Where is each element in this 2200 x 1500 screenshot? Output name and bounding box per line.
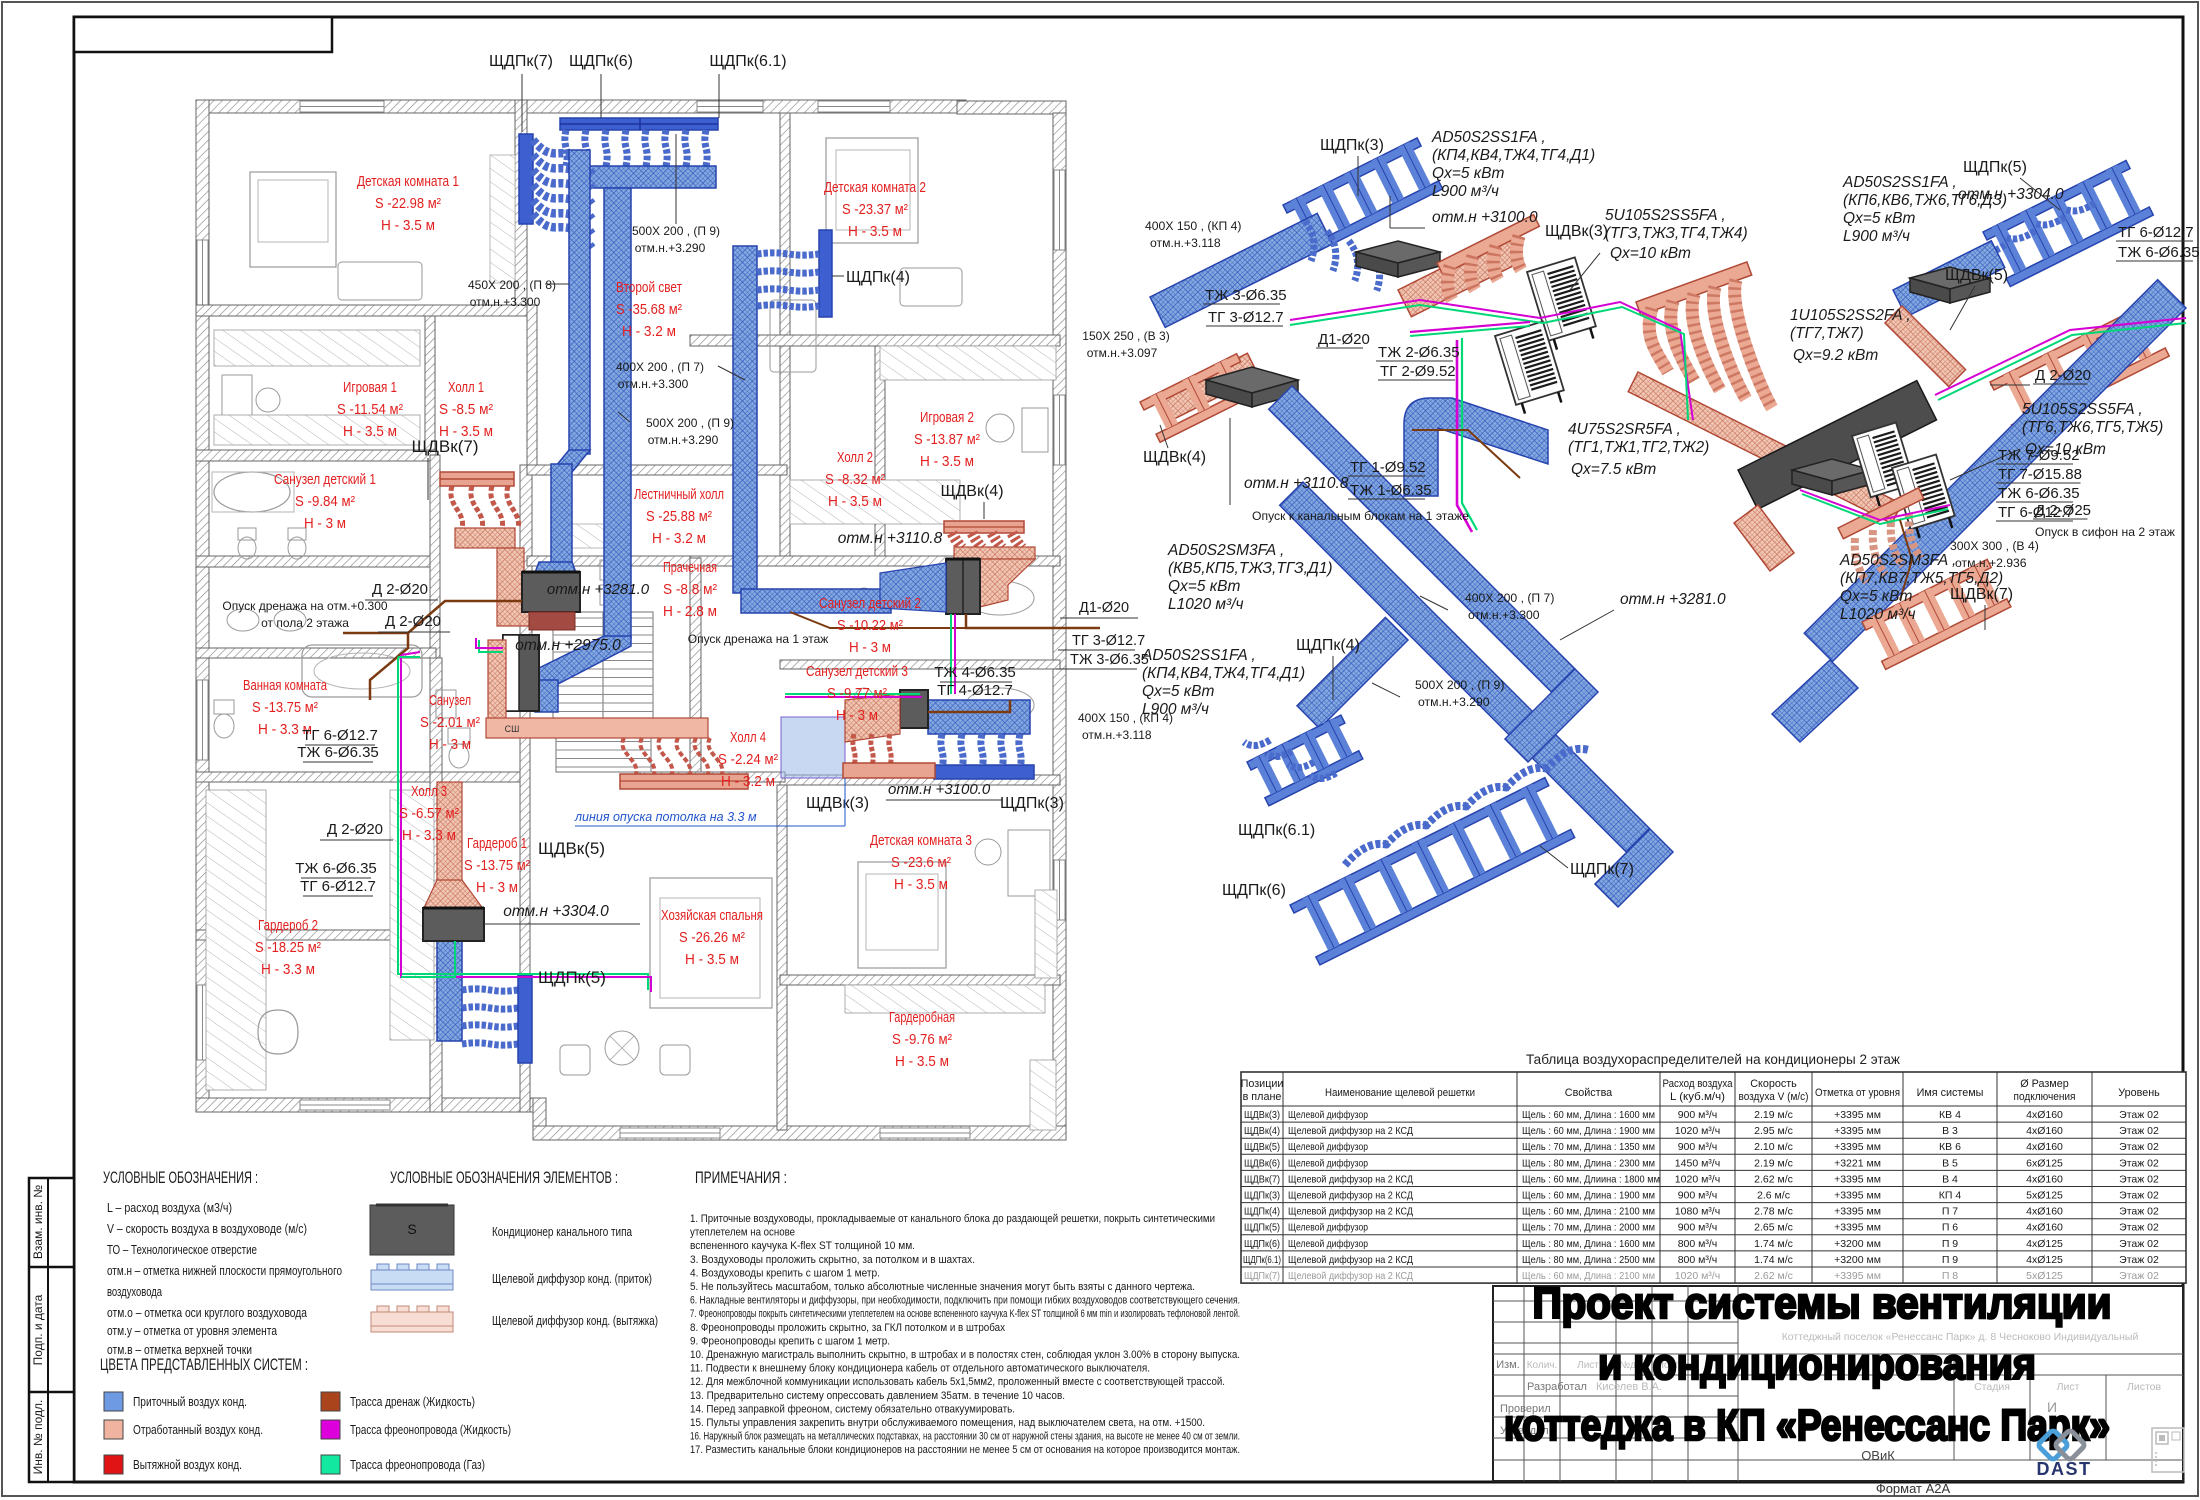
svg-text:отм.у – отметка от уровня элем: отм.у – отметка от уровня элемента — [107, 1324, 277, 1338]
svg-text:S -8.5 м²: S -8.5 м² — [439, 402, 493, 418]
svg-text:ЩДПк(4): ЩДПк(4) — [846, 269, 910, 286]
svg-text:Щель : 60 мм, Длина : 1900 мм: Щель : 60 мм, Длина : 1900 мм — [1522, 1190, 1655, 1202]
svg-text:В 4: В 4 — [1942, 1173, 1958, 1185]
svg-text:800 м³/ч: 800 м³/ч — [1678, 1254, 1718, 1266]
svg-text:Д1-Ø20: Д1-Ø20 — [1079, 600, 1129, 616]
svg-text:L900 м³/ч: L900 м³/ч — [1432, 183, 1499, 200]
svg-text:(ТГ6,ТЖ6,ТГ5,ТЖ5): (ТГ6,ТЖ6,ТГ5,ТЖ5) — [2022, 419, 2163, 436]
svg-text:4хØ125: 4хØ125 — [2026, 1238, 2063, 1250]
svg-text:В 5: В 5 — [1942, 1157, 1958, 1169]
svg-text:10. Дренажную магистраль выпол: 10. Дренажную магистраль выполнить скрыт… — [690, 1349, 1240, 1361]
svg-text:(КВ5,КП5,ТЖЗ,ТГЗ,Д1): (КВ5,КП5,ТЖЗ,ТГЗ,Д1) — [1168, 560, 1333, 577]
svg-text:4хØ160: 4хØ160 — [2026, 1173, 2063, 1185]
svg-text:Таблица воздухораспределителей: Таблица воздухораспределителей на кондиц… — [1526, 1052, 1900, 1067]
svg-text:Этаж 02: Этаж 02 — [2119, 1222, 2159, 1234]
svg-text:L1020 м³/ч: L1020 м³/ч — [1840, 606, 1916, 623]
svg-text:Н - 3.2 м: Н - 3.2 м — [652, 531, 706, 547]
svg-text:+3395 мм: +3395 мм — [1834, 1190, 1881, 1202]
svg-text:Холл 3: Холл 3 — [411, 784, 447, 800]
svg-text:+3395 мм: +3395 мм — [1834, 1206, 1881, 1218]
svg-text:ТЖ 1-Ø6.35: ТЖ 1-Ø6.35 — [1350, 482, 1432, 499]
svg-text:ЩДПк(3): ЩДПк(3) — [1000, 795, 1064, 812]
svg-text:DAST: DAST — [2037, 1459, 2092, 1479]
svg-text:отм.н.+3.300: отм.н.+3.300 — [470, 295, 541, 309]
svg-text:ОВиК: ОВиК — [1861, 1448, 1895, 1463]
svg-text:П 7: П 7 — [1942, 1206, 1958, 1218]
svg-text:ТЖ 2-Ø6.35: ТЖ 2-Ø6.35 — [1378, 344, 1460, 361]
svg-text:ЩДПк(4): ЩДПк(4) — [1244, 1206, 1280, 1218]
svg-text:Игровая 2: Игровая 2 — [920, 410, 974, 426]
svg-text:ЩДПк(6): ЩДПк(6) — [569, 53, 633, 70]
svg-text:ТГ 3-Ø12.7: ТГ 3-Ø12.7 — [1072, 633, 1145, 649]
svg-text:Qx=5 кВт: Qx=5 кВт — [1168, 578, 1240, 595]
svg-text:Н - 2.8 м: Н - 2.8 м — [663, 604, 717, 620]
svg-text:900 м³/ч: 900 м³/ч — [1678, 1109, 1718, 1121]
svg-text:4. Воздуховоды крепить с шагом: 4. Воздуховоды крепить с шагом 1 метр. — [690, 1267, 880, 1279]
svg-text:отм.н +3304.0: отм.н +3304.0 — [503, 903, 609, 920]
svg-text:Лист: Лист — [2057, 1381, 2080, 1393]
svg-text:S -9.76 м²: S -9.76 м² — [892, 1032, 952, 1048]
svg-text:Детская комната 2: Детская комната 2 — [824, 180, 926, 196]
svg-text:Разработал: Разработал — [1527, 1381, 1587, 1393]
svg-text:ЩДВк(3): ЩДВк(3) — [1244, 1109, 1280, 1121]
svg-text:УСЛОВНЫЕ ОБОЗНАЧЕНИЯ :: УСЛОВНЫЕ ОБОЗНАЧЕНИЯ : — [103, 1169, 258, 1187]
svg-text:S -13.87 м²: S -13.87 м² — [914, 432, 980, 448]
svg-text:ЩДВк(5): ЩДВк(5) — [1244, 1141, 1280, 1153]
svg-text:ЦВЕТА ПРЕДСТАВЛЕННЫХ СИСТЕМ :: ЦВЕТА ПРЕДСТАВЛЕННЫХ СИСТЕМ : — [100, 1356, 308, 1374]
svg-text:(ТГЗ,ТЖЗ,ТГ4,ТЖ4): (ТГЗ,ТЖЗ,ТГ4,ТЖ4) — [1605, 225, 1748, 242]
svg-text:900 м³/ч: 900 м³/ч — [1678, 1141, 1718, 1153]
svg-text:4хØ160: 4хØ160 — [2026, 1109, 2063, 1121]
svg-text:ЩДВк(3): ЩДВк(3) — [806, 795, 869, 812]
svg-text:14. Перед заправкой фреоном, с: 14. Перед заправкой фреоном, систему обя… — [690, 1403, 1015, 1415]
svg-text:Н - 3 м: Н - 3 м — [429, 737, 471, 753]
svg-text:500Х 200 , (П 9): 500Х 200 , (П 9) — [632, 224, 720, 238]
svg-text:Этаж 02: Этаж 02 — [2119, 1238, 2159, 1250]
svg-text:ЩДПк(4): ЩДПк(4) — [1296, 637, 1360, 654]
svg-text:4хØ160: 4хØ160 — [2026, 1222, 2063, 1234]
svg-text:12. Для межблочной коммуникаци: 12. Для межблочной коммуникации использо… — [690, 1376, 1225, 1388]
svg-text:ЩДПк(5): ЩДПк(5) — [1963, 159, 2027, 176]
svg-text:ЩДПк(6.1): ЩДПк(6.1) — [1243, 1254, 1281, 1266]
svg-text:Щелевой диффузор на 2 КСД: Щелевой диффузор на 2 КСД — [1288, 1173, 1413, 1185]
svg-text:Вытяжной воздух конд.: Вытяжной воздух конд. — [133, 1458, 242, 1472]
svg-text:4хØ160: 4хØ160 — [2026, 1206, 2063, 1218]
svg-text:Н - 3.3 м: Н - 3.3 м — [402, 828, 456, 844]
svg-text:2.19 м/с: 2.19 м/с — [1754, 1157, 1793, 1169]
svg-text:коттеджа в КП «Ренессанс Парк»: коттеджа в КП «Ренессанс Парк» — [1504, 1401, 2110, 1450]
svg-text:ЩДПк(5): ЩДПк(5) — [1244, 1222, 1280, 1234]
svg-text:Щелевой диффузор на 2 КСД: Щелевой диффузор на 2 КСД — [1288, 1206, 1413, 1218]
svg-text:(КП4,КВ4,ТЖ4,ТГ4,Д1): (КП4,КВ4,ТЖ4,ТГ4,Д1) — [1432, 147, 1595, 164]
svg-text:1450 м³/ч: 1450 м³/ч — [1675, 1157, 1720, 1169]
svg-text:Позиции: Позиции — [1241, 1078, 1284, 1090]
svg-text:СШ: СШ — [505, 724, 520, 734]
svg-text:Н - 3.2 м: Н - 3.2 м — [721, 774, 775, 790]
svg-text:+3395 мм: +3395 мм — [1834, 1141, 1881, 1153]
svg-text:отм.н +3110.8: отм.н +3110.8 — [838, 530, 943, 547]
svg-text:Щелевой диффузор: Щелевой диффузор — [1288, 1157, 1368, 1169]
svg-text:4хØ160: 4хØ160 — [2026, 1125, 2063, 1137]
svg-text:Свойства: Свойства — [1565, 1087, 1612, 1099]
svg-text:S: S — [407, 1221, 416, 1237]
svg-text:S -2.01 м²: S -2.01 м² — [420, 715, 480, 731]
svg-text:Н - 3 м: Н - 3 м — [304, 516, 346, 532]
svg-text:Н - 3.5 м: Н - 3.5 м — [828, 494, 882, 510]
svg-text:ЩДПк(3): ЩДПк(3) — [1244, 1190, 1280, 1202]
svg-text:ТЖ 4-Ø6.35: ТЖ 4-Ø6.35 — [934, 664, 1016, 681]
svg-text:Гардеробная: Гардеробная — [889, 1010, 955, 1026]
svg-text:500Х 200 , (П 9): 500Х 200 , (П 9) — [646, 416, 734, 430]
svg-text:S -23.37 м²: S -23.37 м² — [842, 202, 908, 218]
svg-text:Кондиционер канального типа: Кондиционер канального типа — [492, 1225, 632, 1239]
svg-text:2.78 м/с: 2.78 м/с — [1754, 1206, 1793, 1218]
svg-text:Щелевой диффузор конд. (приток: Щелевой диффузор конд. (приток) — [492, 1272, 652, 1286]
svg-text:Qx=5 кВт: Qx=5 кВт — [1843, 210, 1915, 227]
svg-text:ТГ 2-Ø9.52: ТГ 2-Ø9.52 — [1380, 363, 1456, 380]
svg-text:ЩДВк(6): ЩДВк(6) — [1244, 1157, 1280, 1169]
svg-text:Н - 3.5 м: Н - 3.5 м — [685, 952, 739, 968]
svg-text:6хØ125: 6хØ125 — [2026, 1157, 2063, 1169]
svg-text:Формат А2А: Формат А2А — [1876, 1481, 1951, 1496]
svg-text:КП 4: КП 4 — [1939, 1190, 1962, 1202]
svg-text:S -18.25 м²: S -18.25 м² — [255, 940, 321, 956]
svg-text:ЩДВк(4): ЩДВк(4) — [1244, 1125, 1280, 1137]
svg-text:Детская комната 1: Детская комната 1 — [357, 174, 459, 190]
svg-text:Щель : 60 мм, Длина : 1900 мм: Щель : 60 мм, Длина : 1900 мм — [1522, 1125, 1655, 1137]
svg-text:ЩДПк(7): ЩДПк(7) — [1570, 861, 1634, 878]
svg-text:Опуск в сифон на 2 этаж: Опуск в сифон на 2 этаж — [2035, 525, 2176, 539]
svg-text:S -8.32 м²: S -8.32 м² — [825, 472, 885, 488]
svg-text:Хозяйская спальня: Хозяйская спальня — [661, 908, 763, 924]
svg-text:ЩДВк(7): ЩДВк(7) — [1244, 1173, 1280, 1185]
svg-text:6. Накладные вентиляторы и диф: 6. Накладные вентиляторы и диффузоры, пр… — [690, 1295, 1240, 1307]
svg-text:+3200 мм: +3200 мм — [1834, 1238, 1881, 1250]
svg-text:S -13.75 м²: S -13.75 м² — [464, 858, 530, 874]
svg-text:ТЖ 6-Ø6.35: ТЖ 6-Ø6.35 — [295, 860, 377, 877]
svg-text:5U105S2SS5FA ,: 5U105S2SS5FA , — [1605, 207, 1726, 224]
svg-text:Этаж 02: Этаж 02 — [2119, 1190, 2159, 1202]
svg-text:и кондиционирования: и кондиционирования — [1598, 1340, 2036, 1389]
svg-text:Щелевой диффузор: Щелевой диффузор — [1288, 1238, 1368, 1250]
svg-text:отм.н.+3.300: отм.н.+3.300 — [618, 377, 689, 391]
svg-text:S -26.26 м²: S -26.26 м² — [679, 930, 745, 946]
svg-text:ЩДВк(3): ЩДВк(3) — [1545, 223, 1608, 240]
svg-text:Прачечная: Прачечная — [663, 560, 717, 576]
svg-text:отм.н – отметка нижней плоскос: отм.н – отметка нижней плоскости прямоуг… — [107, 1264, 342, 1278]
svg-text:Инв. № подл.: Инв. № подл. — [31, 1400, 45, 1475]
svg-text:S -6.57 м²: S -6.57 м² — [399, 806, 459, 822]
svg-text:Щель : 70 мм, Длина : 2000 мм: Щель : 70 мм, Длина : 2000 мм — [1522, 1222, 1655, 1234]
svg-text:Щель : 60 мм, Длиина : 1800 мм: Щель : 60 мм, Длиина : 1800 мм — [1522, 1173, 1660, 1185]
svg-text:Холл 2: Холл 2 — [837, 450, 873, 466]
svg-text:в плане: в плане — [1243, 1091, 1282, 1103]
svg-text:вспененного каучука K-flex ST: вспененного каучука K-flex ST толщиной 1… — [690, 1240, 915, 1252]
svg-text:ТЖ 6-Ø6.35: ТЖ 6-Ø6.35 — [1998, 485, 2080, 502]
svg-text:L (куб.м/ч): L (куб.м/ч) — [1670, 1091, 1725, 1103]
svg-text:воздуха V (м/с): воздуха V (м/с) — [1739, 1091, 1809, 1103]
svg-text:Этаж 02: Этаж 02 — [2119, 1270, 2159, 1282]
svg-text:Этаж 02: Этаж 02 — [2119, 1206, 2159, 1218]
svg-text:9. Фреонопроводы крепить с шаг: 9. Фреонопроводы крепить с шагом 1 метр. — [690, 1335, 890, 1347]
svg-text:16. Наружный блок размещать н: 16. Наружный блок размещать на металличе… — [690, 1431, 1240, 1443]
svg-text:13. Предварительно систему опр: 13. Предварительно систему опрессовать д… — [690, 1390, 1065, 1402]
svg-text:+3395 мм: +3395 мм — [1834, 1125, 1881, 1137]
svg-text:ТГ 4-Ø12.7: ТГ 4-Ø12.7 — [937, 682, 1013, 699]
svg-text:Щель : 60 мм, Длина : 1600 мм: Щель : 60 мм, Длина : 1600 мм — [1522, 1109, 1655, 1121]
svg-text:+3395 мм: +3395 мм — [1834, 1222, 1881, 1234]
svg-text:5хØ125: 5хØ125 — [2026, 1190, 2063, 1202]
svg-text:Подп. и дата: Подп. и дата — [31, 1294, 45, 1365]
svg-text:отм.н.+3.290: отм.н.+3.290 — [648, 433, 719, 447]
svg-text:Трасса фреонопровода (Газ): Трасса фреонопровода (Газ) — [350, 1458, 485, 1472]
svg-text:Н - 3.5 м: Н - 3.5 м — [920, 454, 974, 470]
svg-text:ЩДВк(5): ЩДВк(5) — [538, 839, 605, 858]
svg-text:Санузел: Санузел — [429, 693, 471, 709]
svg-text:Щель : 60 мм, Длина : 2100 мм: Щель : 60 мм, Длина : 2100 мм — [1522, 1206, 1655, 1218]
svg-text:1020 м³/ч: 1020 м³/ч — [1675, 1173, 1720, 1185]
svg-text:отм.н +3304.0: отм.н +3304.0 — [1958, 186, 2064, 203]
svg-text:11. Подвести к внешнему блоку: 11. Подвести к внешнему блоку кондиционе… — [690, 1363, 1150, 1375]
svg-text:S -23.6 м²: S -23.6 м² — [891, 855, 951, 871]
svg-text:воздуховода: воздуховода — [107, 1285, 162, 1299]
svg-text:Щелевой диффузор на 2 КСД: Щелевой диффузор на 2 КСД — [1288, 1254, 1413, 1266]
svg-text:8. Фреонопроводы проложить скр: 8. Фреонопроводы проложить скрытно, за Г… — [690, 1322, 1005, 1334]
svg-text:Этаж 02: Этаж 02 — [2119, 1254, 2159, 1266]
svg-text:Щелевой диффузор: Щелевой диффузор — [1288, 1141, 1368, 1153]
svg-text:+3221 мм: +3221 мм — [1834, 1157, 1881, 1169]
svg-text:Этаж 02: Этаж 02 — [2119, 1141, 2159, 1153]
svg-text:2.19 м/с: 2.19 м/с — [1754, 1109, 1793, 1121]
svg-text:7. Фреонопроводы покрыть синте: 7. Фреонопроводы покрыть синтетическими … — [690, 1308, 1240, 1320]
svg-text:Н - 3.2 м: Н - 3.2 м — [622, 324, 676, 340]
svg-text:отм.н.+3.300: отм.н.+3.300 — [1468, 608, 1540, 622]
svg-text:ТЖ 7-Ø9.52: ТЖ 7-Ø9.52 — [1998, 447, 2080, 464]
svg-text:AD50S2SS1FA ,: AD50S2SS1FA , — [1141, 647, 1256, 664]
svg-text:Второй свет: Второй свет — [616, 280, 682, 296]
svg-text:ЩДПк(6): ЩДПк(6) — [1244, 1238, 1280, 1250]
svg-text:AD50S2SS1FA ,: AD50S2SS1FA , — [1842, 174, 1957, 191]
svg-text:утеплетелем на основе: утеплетелем на основе — [690, 1227, 795, 1239]
svg-text:отм.н +3281.0: отм.н +3281.0 — [1620, 591, 1726, 608]
svg-text:ТГ 6-Ø12.7: ТГ 6-Ø12.7 — [300, 878, 376, 895]
svg-text:Изм.: Изм. — [1496, 1359, 1520, 1371]
svg-text:L – расход воздуха (м3/ч): L – расход воздуха (м3/ч) — [107, 1201, 232, 1215]
svg-text:КВ 6: КВ 6 — [1939, 1141, 1961, 1153]
svg-text:Д 2-Ø25: Д 2-Ø25 — [2035, 502, 2091, 519]
svg-text:В 3: В 3 — [1942, 1125, 1958, 1137]
svg-text:Имя системы: Имя системы — [1917, 1087, 1984, 1099]
svg-text:Взам. инв. №: Взам. инв. № — [31, 1185, 45, 1259]
svg-text:2.65 м/с: 2.65 м/с — [1754, 1222, 1793, 1234]
svg-text:Отметка от уровня: Отметка от уровня — [1815, 1087, 1900, 1099]
svg-text:Игровая 1: Игровая 1 — [343, 380, 397, 396]
svg-text:Щелевой диффузор на 2 КСД: Щелевой диффузор на 2 КСД — [1288, 1270, 1413, 1282]
svg-text:Qx=9.2 кВт: Qx=9.2 кВт — [1793, 347, 1878, 364]
svg-text:Холл 1: Холл 1 — [448, 380, 484, 396]
svg-text:Н - 3.5 м: Н - 3.5 м — [895, 1054, 949, 1070]
svg-text:ЩДВк(4): ЩДВк(4) — [1143, 449, 1206, 466]
svg-text:УСЛОВНЫЕ ОБОЗНАЧЕНИЯ ЭЛЕМЕНТОВ: УСЛОВНЫЕ ОБОЗНАЧЕНИЯ ЭЛЕМЕНТОВ : — [390, 1169, 618, 1187]
svg-text:(ТГ7,ТЖ7): (ТГ7,ТЖ7) — [1790, 325, 1864, 342]
svg-text:Д 2-Ø20: Д 2-Ø20 — [327, 821, 383, 838]
svg-text:ТО – Технологическое отверстие: ТО – Технологическое отверстие — [107, 1243, 257, 1257]
svg-text:Гардероб 2: Гардероб 2 — [258, 918, 318, 934]
svg-text:Д 2-Ø20: Д 2-Ø20 — [2035, 367, 2091, 384]
svg-text:отм.н +3281.0: отм.н +3281.0 — [547, 581, 650, 598]
svg-text:Н - 3.5 м: Н - 3.5 м — [894, 877, 948, 893]
svg-text:ЩДПк(5): ЩДПк(5) — [538, 968, 606, 987]
svg-text:Н - 3 м: Н - 3 м — [476, 880, 518, 896]
svg-text:Трасса дренаж (Жидкость): Трасса дренаж (Жидкость) — [350, 1395, 475, 1409]
svg-text:Щель : 80 мм, Длина : 2300 мм: Щель : 80 мм, Длина : 2300 мм — [1522, 1157, 1655, 1169]
svg-text:500Х 200 , (П 9): 500Х 200 , (П 9) — [1415, 678, 1504, 692]
svg-text:S -10.22 м²: S -10.22 м² — [837, 618, 903, 634]
svg-text:Щелевой диффузор на 2 КСД: Щелевой диффузор на 2 КСД — [1288, 1125, 1413, 1137]
svg-text:1. Приточные воздуховоды, прок: 1. Приточные воздуховоды, прокладываемые… — [690, 1213, 1215, 1225]
svg-text:от пола 2 этажа: от пола 2 этажа — [261, 616, 349, 630]
svg-text:Этаж 02: Этаж 02 — [2119, 1173, 2159, 1185]
svg-text:Уровень: Уровень — [2118, 1087, 2160, 1099]
svg-text:ТЖ 3-Ø6.35: ТЖ 3-Ø6.35 — [1205, 287, 1287, 304]
svg-text:Трасса фреонопровода (Жидкость: Трасса фреонопровода (Жидкость) — [350, 1423, 511, 1437]
svg-text:Щелевой диффузор конд. (вытяжк: Щелевой диффузор конд. (вытяжка) — [492, 1314, 658, 1328]
svg-text:ТГ 6-Ø12.7: ТГ 6-Ø12.7 — [2118, 224, 2194, 241]
svg-text:Ø Размер: Ø Размер — [2020, 1078, 2069, 1090]
svg-text:900 м³/ч: 900 м³/ч — [1678, 1190, 1718, 1202]
svg-text:отм.н +2975.0: отм.н +2975.0 — [515, 637, 621, 654]
svg-text:Санузел детский 1: Санузел детский 1 — [274, 472, 376, 488]
svg-text:ПРИМЕЧАНИЯ :: ПРИМЕЧАНИЯ : — [695, 1169, 787, 1187]
svg-text:400Х 200 , (П 7): 400Х 200 , (П 7) — [1465, 591, 1554, 605]
svg-text:S -11.54 м²: S -11.54 м² — [337, 402, 403, 418]
svg-text:Щелевой диффузор на 2 КСД: Щелевой диффузор на 2 КСД — [1288, 1190, 1413, 1202]
svg-text:Н - 3.3 м: Н - 3.3 м — [261, 962, 315, 978]
svg-text:Наименование щелевой решетки: Наименование щелевой решетки — [1325, 1087, 1475, 1099]
svg-text:+3200 мм: +3200 мм — [1834, 1254, 1881, 1266]
svg-text:Н - 3 м: Н - 3 м — [836, 708, 878, 724]
svg-text:5. Не пользуйтесь масштабом, т: 5. Не пользуйтесь масштабом, только абсо… — [690, 1281, 1195, 1293]
svg-text:ТГ 7-Ø15.88: ТГ 7-Ø15.88 — [1998, 466, 2082, 483]
svg-text:Холл 4: Холл 4 — [730, 730, 766, 746]
svg-text:2.6 м/с: 2.6 м/с — [1757, 1190, 1790, 1202]
svg-text:AD50S2SM3FA ,: AD50S2SM3FA , — [1167, 542, 1284, 559]
svg-text:Расход воздуха: Расход воздуха — [1663, 1078, 1733, 1090]
svg-text:S -9.84 м²: S -9.84 м² — [295, 494, 355, 510]
svg-text:Приточный воздух конд.: Приточный воздух конд. — [133, 1395, 247, 1409]
svg-text:1.74 м/с: 1.74 м/с — [1754, 1238, 1793, 1250]
svg-text:отм.н +3110.8: отм.н +3110.8 — [1244, 475, 1349, 492]
svg-text:Санузел детский 3: Санузел детский 3 — [806, 664, 908, 680]
svg-text:S -2.24 м²: S -2.24 м² — [718, 752, 778, 768]
svg-text:ЩДПк(3): ЩДПк(3) — [1320, 137, 1384, 154]
svg-text:1020 м³/ч: 1020 м³/ч — [1675, 1125, 1720, 1137]
svg-text:Детская комната 3: Детская комната 3 — [870, 833, 972, 849]
svg-text:ЩДПк(7): ЩДПк(7) — [1244, 1270, 1280, 1282]
svg-text:ТГ 1-Ø9.52: ТГ 1-Ø9.52 — [1350, 459, 1426, 476]
svg-text:3. Воздуховоды проложить скрыт: 3. Воздуховоды проложить скрытно, за пот… — [690, 1254, 975, 1266]
svg-text:1U105S2SS2FA ,: 1U105S2SS2FA , — [1790, 307, 1911, 324]
svg-text:15. Пульты управления закрепит: 15. Пульты управления закрепить внутри о… — [690, 1417, 1205, 1429]
svg-text:ЩДВк(7): ЩДВк(7) — [1950, 586, 2013, 603]
svg-text:Скорость: Скорость — [1750, 1078, 1797, 1090]
svg-text:1.74 м/с: 1.74 м/с — [1754, 1254, 1793, 1266]
svg-text:S -8.8 м²: S -8.8 м² — [663, 582, 717, 598]
svg-text:Н - 3.5 м: Н - 3.5 м — [343, 424, 397, 440]
svg-text:Ванная комната: Ванная комната — [243, 678, 328, 694]
svg-text:ЩДВк(7): ЩДВк(7) — [411, 437, 478, 456]
svg-text:Н - 3.5 м: Н - 3.5 м — [381, 218, 435, 234]
svg-text:отм.в – отметка верхней точки: отм.в – отметка верхней точки — [107, 1343, 252, 1357]
svg-text:Лист: Лист — [1577, 1360, 1599, 1371]
svg-text:ЩДПк(6.1): ЩДПк(6.1) — [709, 53, 786, 70]
svg-text:Д1-Ø20: Д1-Ø20 — [1318, 331, 1370, 348]
svg-text:800 м³/ч: 800 м³/ч — [1678, 1238, 1718, 1250]
svg-text:L1020 м³/ч: L1020 м³/ч — [1168, 596, 1244, 613]
svg-text:КВ 4: КВ 4 — [1939, 1109, 1961, 1121]
svg-text:S -25.88 м²: S -25.88 м² — [646, 509, 712, 525]
svg-text:отм.н.+3.118: отм.н.+3.118 — [1150, 236, 1221, 250]
svg-text:AD50S2SS1FA ,: AD50S2SS1FA , — [1431, 129, 1546, 146]
svg-text:400Х 200 , (П 7): 400Х 200 , (П 7) — [616, 360, 704, 374]
svg-text:S -22.98 м²: S -22.98 м² — [375, 196, 441, 212]
svg-text:отм.н.+3.118: отм.н.+3.118 — [1082, 728, 1152, 742]
svg-text:Qx=5 кВт: Qx=5 кВт — [1432, 165, 1504, 182]
svg-text:Лестничный холл: Лестничный холл — [634, 487, 724, 503]
svg-text:4U75S2SR5FA ,: 4U75S2SR5FA , — [1568, 421, 1681, 438]
svg-text:ЩДПк(6.1): ЩДПк(6.1) — [1238, 822, 1315, 839]
svg-text:отм.о – отметка оси круглого в: отм.о – отметка оси круглого воздуховода — [107, 1306, 307, 1320]
svg-text:Н - 3 м: Н - 3 м — [849, 640, 891, 656]
svg-text:Щелевой диффузор: Щелевой диффузор — [1288, 1222, 1368, 1234]
svg-text:4хØ125: 4хØ125 — [2026, 1254, 2063, 1266]
svg-text:Qx=10 кВт: Qx=10 кВт — [1610, 245, 1691, 262]
svg-text:отм.н.+3.290: отм.н.+3.290 — [635, 241, 706, 255]
svg-text:L900 м³/ч: L900 м³/ч — [1142, 701, 1209, 718]
svg-text:отм.н.+3.290: отм.н.+3.290 — [1418, 695, 1490, 709]
svg-text:Qx=5 кВт: Qx=5 кВт — [1840, 588, 1912, 605]
svg-text:ЩДВк(4): ЩДВк(4) — [940, 483, 1003, 500]
svg-text:300Х 300 , (В 4): 300Х 300 , (В 4) — [1950, 539, 2039, 553]
svg-text:Д 2-Ø20: Д 2-Ø20 — [385, 613, 441, 630]
svg-text:450Х 200 , (П 8): 450Х 200 , (П 8) — [468, 278, 556, 292]
svg-text:линия опуска потолка на 3.3 м: линия опуска потолка на 3.3 м — [574, 810, 757, 824]
svg-text:Щелевой диффузор: Щелевой диффузор — [1288, 1109, 1368, 1121]
svg-text:Колич.: Колич. — [1527, 1360, 1558, 1371]
svg-text:+3395 мм: +3395 мм — [1834, 1109, 1881, 1121]
svg-text:17. Разместить канальные блоки: 17. Разместить канальные блоки кондицион… — [690, 1444, 1240, 1456]
svg-text:Гардероб 1: Гардероб 1 — [467, 836, 527, 852]
svg-text:5U105S2SS5FA ,: 5U105S2SS5FA , — [2022, 401, 2143, 418]
svg-text:1080 м³/ч: 1080 м³/ч — [1675, 1206, 1720, 1218]
svg-text:отм.н +3100.0: отм.н +3100.0 — [888, 781, 991, 798]
svg-text:отм.н +3100.0: отм.н +3100.0 — [1432, 209, 1538, 226]
svg-text:S -9.77 м²: S -9.77 м² — [827, 686, 887, 702]
svg-text:ТЖ 6-Ø6.35: ТЖ 6-Ø6.35 — [2118, 244, 2200, 261]
svg-text:900 м³/ч: 900 м³/ч — [1678, 1222, 1718, 1234]
svg-text:400Х 150 , (КП 4): 400Х 150 , (КП 4) — [1145, 219, 1241, 233]
svg-text:L900 м³/ч: L900 м³/ч — [1843, 228, 1910, 245]
svg-text:V – скорость воздуха в воздухо: V – скорость воздуха в воздуховоде (м/с) — [107, 1222, 307, 1236]
svg-text:подключения: подключения — [2014, 1091, 2076, 1103]
svg-text:Этаж 02: Этаж 02 — [2119, 1125, 2159, 1137]
svg-text:S -35.68 м²: S -35.68 м² — [616, 302, 682, 318]
svg-text:ЩДПк(6): ЩДПк(6) — [1222, 882, 1286, 899]
svg-text:Санузел детский 2: Санузел детский 2 — [819, 596, 921, 612]
svg-text:S -13.75 м²: S -13.75 м² — [252, 700, 318, 716]
svg-text:ТЖ 6-Ø6.35: ТЖ 6-Ø6.35 — [297, 744, 379, 761]
svg-text:ЩДВк(5): ЩДВк(5) — [1945, 267, 2008, 284]
